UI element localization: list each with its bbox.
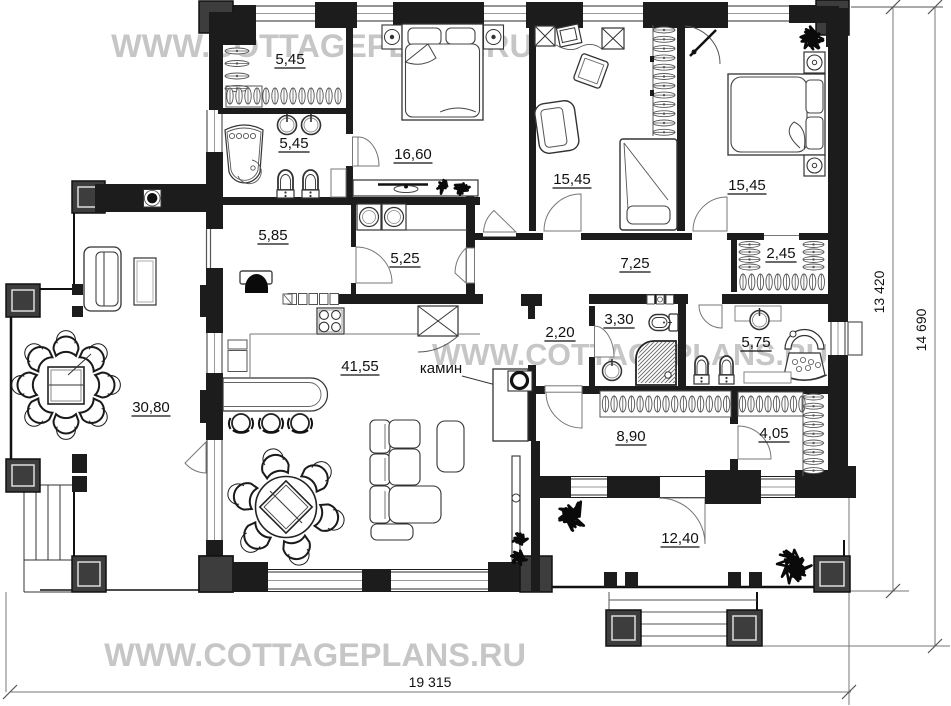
svg-text:16,60: 16,60 [394, 146, 432, 163]
svg-text:WWW.COTTAGEPLANS.RU: WWW.COTTAGEPLANS.RU [104, 637, 526, 673]
svg-text:14 690: 14 690 [913, 308, 929, 351]
svg-text:12,40: 12,40 [661, 530, 699, 547]
svg-text:камин: камин [420, 360, 462, 377]
svg-text:3,30: 3,30 [604, 311, 633, 328]
svg-text:5,25: 5,25 [390, 250, 419, 267]
svg-text:13 420: 13 420 [871, 270, 887, 313]
svg-text:15,45: 15,45 [553, 171, 591, 188]
svg-text:41,55: 41,55 [341, 358, 379, 375]
svg-text:5,45: 5,45 [279, 135, 308, 152]
svg-text:4,05: 4,05 [759, 425, 788, 442]
svg-text:19 315: 19 315 [409, 674, 452, 690]
svg-text:7,25: 7,25 [620, 255, 649, 272]
svg-text:30,80: 30,80 [132, 399, 170, 416]
svg-text:5,75: 5,75 [741, 334, 770, 351]
svg-text:5,45: 5,45 [275, 51, 304, 68]
svg-text:8,90: 8,90 [616, 428, 645, 445]
svg-text:5,85: 5,85 [258, 227, 287, 244]
svg-text:2,45: 2,45 [766, 245, 795, 262]
svg-text:2,20: 2,20 [545, 324, 574, 341]
svg-text:15,45: 15,45 [728, 177, 766, 194]
